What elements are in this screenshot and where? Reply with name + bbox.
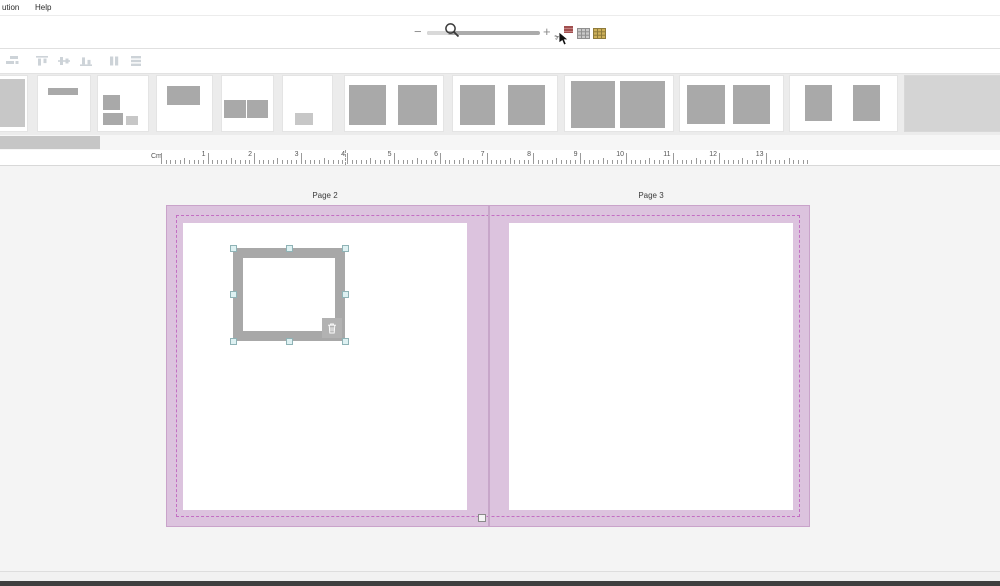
- ruler-tick: [282, 160, 283, 164]
- ruler-tick: [505, 160, 506, 164]
- layout-box: [853, 85, 880, 121]
- ruler-tick: [394, 153, 395, 164]
- page-label-left: Page 2: [285, 191, 365, 200]
- ruler-tick: [412, 160, 413, 164]
- menu-item-help[interactable]: Help: [35, 3, 51, 12]
- layout-box: [349, 85, 386, 125]
- photo-placeholder[interactable]: [233, 248, 345, 341]
- ruler-tick: [607, 160, 608, 164]
- ruler-tick: [170, 160, 171, 164]
- ruler-tick: [319, 160, 320, 164]
- layout-box: [224, 100, 246, 118]
- layout-strip: [0, 74, 1000, 135]
- layout-box: [0, 79, 25, 127]
- ruler-tick: [277, 158, 278, 164]
- ruler-tick: [542, 160, 543, 164]
- layout-thumb-caption-box[interactable]: [283, 76, 332, 131]
- ruler-tick: [691, 160, 692, 164]
- selection-handle[interactable]: [230, 245, 237, 252]
- zoom-slider[interactable]: [427, 31, 540, 35]
- ruler-tick: [454, 160, 455, 164]
- ruler-tick: [538, 160, 539, 164]
- scrollbar-thumb[interactable]: [0, 136, 100, 149]
- ruler-tick: [756, 160, 757, 164]
- ruler-tick: [398, 160, 399, 164]
- ruler-number: 10: [614, 151, 624, 158]
- ruler-tick: [580, 153, 581, 164]
- ruler-tick: [459, 160, 460, 164]
- ruler-tick: [603, 158, 604, 164]
- ruler-tick: [528, 160, 529, 164]
- ruler-tick: [417, 158, 418, 164]
- selection-handle[interactable]: [286, 245, 293, 252]
- align-middle-icon[interactable]: [57, 55, 71, 67]
- align-bottom-icon[interactable]: [79, 55, 93, 67]
- layout-box: [247, 100, 268, 118]
- ruler-tick: [259, 160, 260, 164]
- selection-handle[interactable]: [342, 291, 349, 298]
- ruler-tick: [719, 153, 720, 164]
- ruler-tick: [403, 160, 404, 164]
- layout-box: [687, 85, 725, 124]
- ruler-tick: [487, 153, 488, 164]
- ruler-tick: [226, 160, 227, 164]
- layout-box: [620, 81, 665, 128]
- layout-box: [167, 86, 200, 105]
- ruler-number: 13: [754, 151, 764, 158]
- ruler-tick: [426, 160, 427, 164]
- ruler-tick: [617, 160, 618, 164]
- ruler-tick: [421, 160, 422, 164]
- layout-box: [571, 81, 614, 128]
- ruler-tick: [468, 160, 469, 164]
- menu-item-resolution[interactable]: ution: [2, 3, 19, 12]
- ruler-tick: [500, 160, 501, 164]
- ruler-number: 5: [382, 151, 392, 158]
- ruler-tick: [356, 160, 357, 164]
- ruler-tick: [798, 160, 799, 164]
- ruler-number: 12: [707, 151, 717, 158]
- ruler-tick: [747, 160, 748, 164]
- layout-box: [48, 88, 78, 95]
- ruler-tick: [291, 160, 292, 164]
- selection-handle[interactable]: [342, 338, 349, 345]
- ruler-number: 2: [242, 151, 252, 158]
- selection-handle[interactable]: [342, 245, 349, 252]
- align-top-icon[interactable]: [35, 55, 49, 67]
- ruler-cursor-indicator: [345, 150, 347, 165]
- ruler-tick: [463, 158, 464, 164]
- ruler-tick: [742, 158, 743, 164]
- ruler-tick: [273, 160, 274, 164]
- ruler-tick: [175, 160, 176, 164]
- selection-handle[interactable]: [230, 338, 237, 345]
- ruler-tick: [733, 160, 734, 164]
- ruler-tick: [161, 153, 162, 164]
- spread-order-icon[interactable]: [5, 55, 19, 67]
- ruler-tick: [807, 160, 808, 164]
- layout-thumb-spread-two-a[interactable]: [345, 76, 443, 131]
- layout-box: [460, 85, 494, 125]
- ruler-tick: [347, 153, 348, 164]
- strip-scrollbar[interactable]: [0, 135, 1000, 150]
- ruler-tick: [673, 153, 674, 164]
- ruler-tick: [324, 158, 325, 164]
- ruler-number: 7: [475, 151, 485, 158]
- spread-resize-handle[interactable]: [478, 514, 486, 522]
- ruler-tick: [491, 160, 492, 164]
- ruler-tick: [714, 160, 715, 164]
- ruler-tick: [561, 160, 562, 164]
- selection-handle[interactable]: [230, 291, 237, 298]
- ruler-tick: [626, 153, 627, 164]
- ruler-tick: [570, 160, 571, 164]
- ruler-tick: [793, 160, 794, 164]
- ruler-tick: [435, 160, 436, 164]
- ruler-tick: [296, 160, 297, 164]
- ruler-tick: [552, 160, 553, 164]
- ruler-tick: [361, 160, 362, 164]
- ruler-tick: [245, 160, 246, 164]
- ruler-tick: [668, 160, 669, 164]
- ruler-tick: [593, 160, 594, 164]
- ruler-tick: [180, 160, 181, 164]
- ruler-tick: [514, 160, 515, 164]
- ruler-tick: [789, 158, 790, 164]
- ruler-tick: [445, 160, 446, 164]
- layout-box: [126, 116, 138, 125]
- ruler-tick: [310, 160, 311, 164]
- layout-thumb-mixed-three[interactable]: [98, 76, 148, 131]
- ruler-tick: [533, 153, 534, 164]
- ruler-tick: [431, 160, 432, 164]
- pages-overview-icon[interactable]: [593, 28, 606, 39]
- ruler-tick: [208, 153, 209, 164]
- ruler-tick: [686, 160, 687, 164]
- ruler-tick: [575, 160, 576, 164]
- ruler-tick: [366, 160, 367, 164]
- page-3[interactable]: [509, 223, 793, 510]
- ruler-tick: [333, 160, 334, 164]
- ruler-tick: [640, 160, 641, 164]
- ruler-number: 6: [428, 151, 438, 158]
- ruler-tick: [473, 160, 474, 164]
- ruler-number: 4: [335, 151, 345, 158]
- ruler-tick: [305, 160, 306, 164]
- layout-thumb-two-small[interactable]: [222, 76, 273, 131]
- ruler-tick: [184, 158, 185, 164]
- ruler-number: 11: [661, 151, 671, 158]
- ruler-tick: [519, 160, 520, 164]
- ruler: Cm 12345678910111213: [0, 150, 1000, 166]
- ruler-tick: [779, 160, 780, 164]
- ruler-tick: [407, 160, 408, 164]
- ruler-tick: [249, 160, 250, 164]
- magnifier-slider-handle[interactable]: [444, 22, 462, 40]
- ruler-tick: [598, 160, 599, 164]
- ruler-tick: [375, 160, 376, 164]
- ruler-tick: [482, 160, 483, 164]
- ruler-tick: [752, 160, 753, 164]
- application-window: ution Help − + ✂: [0, 0, 1000, 586]
- ruler-number: 8: [521, 151, 531, 158]
- ruler-tick: [352, 160, 353, 164]
- footer-strip: [0, 571, 1000, 581]
- ruler-tick: [566, 160, 567, 164]
- ruler-tick: [710, 160, 711, 164]
- ruler-tick: [775, 160, 776, 164]
- ruler-tick: [328, 160, 329, 164]
- layout-thumb-single-top[interactable]: [157, 76, 212, 131]
- ruler-tick: [384, 160, 385, 164]
- ruler-tick: [700, 160, 701, 164]
- page-label-right: Page 3: [611, 191, 691, 200]
- ruler-tick: [677, 160, 678, 164]
- layout-box: [398, 85, 437, 125]
- layout-thumb-title-bar[interactable]: [38, 76, 90, 131]
- ruler-tick: [645, 160, 646, 164]
- menu-bar: ution Help: [0, 0, 1000, 16]
- ruler-tick: [784, 160, 785, 164]
- ruler-tick: [696, 158, 697, 164]
- ruler-tick: [370, 158, 371, 164]
- ruler-tick: [477, 160, 478, 164]
- zoom-in-button[interactable]: +: [543, 25, 551, 39]
- ruler-tick: [203, 160, 204, 164]
- spine-line: [488, 206, 490, 526]
- ruler-tick: [194, 160, 195, 164]
- ruler-tick: [217, 160, 218, 164]
- ruler-tick: [705, 160, 706, 164]
- layout-box: [295, 113, 313, 125]
- ruler-tick: [287, 160, 288, 164]
- ruler-tick: [631, 160, 632, 164]
- ruler-tick: [198, 160, 199, 164]
- mouse-cursor: [558, 31, 569, 47]
- ruler-tick: [240, 160, 241, 164]
- layout-thumb-spread-two-e[interactable]: [790, 76, 897, 131]
- alignment-toolbar: [0, 49, 1000, 74]
- ruler-tick: [212, 160, 213, 164]
- ruler-tick: [766, 153, 767, 164]
- ruler-number: 3: [289, 151, 299, 158]
- ruler-tick: [682, 160, 683, 164]
- ruler-tick: [728, 160, 729, 164]
- ruler-tick: [440, 153, 441, 164]
- ruler-tick: [556, 158, 557, 164]
- ruler-tick: [724, 160, 725, 164]
- distribute-horizontal-icon[interactable]: [107, 55, 121, 67]
- ruler-tick: [584, 160, 585, 164]
- ruler-number: 1: [196, 151, 206, 158]
- ruler-tick: [254, 153, 255, 164]
- ruler-tick: [654, 160, 655, 164]
- ruler-tick: [635, 160, 636, 164]
- ruler-tick: [649, 158, 650, 164]
- ruler-tick: [338, 160, 339, 164]
- taskbar-edge: [0, 581, 1000, 586]
- ruler-tick: [221, 160, 222, 164]
- ruler-tick: [301, 153, 302, 164]
- ruler-tick: [496, 160, 497, 164]
- layout-thumb-spread-two-c[interactable]: [565, 76, 673, 131]
- grid-view-icon[interactable]: [577, 28, 590, 39]
- ruler-tick: [770, 160, 771, 164]
- ruler-tick: [589, 160, 590, 164]
- layout-box: [508, 85, 544, 125]
- ruler-tick: [803, 160, 804, 164]
- ruler-tick: [547, 160, 548, 164]
- ruler-tick: [621, 160, 622, 164]
- layout-box: [733, 85, 770, 124]
- zoom-toolbar: − + ✂: [0, 16, 1000, 49]
- ruler-tick: [738, 160, 739, 164]
- design-canvas[interactable]: Page 2 Page 3: [0, 166, 1000, 571]
- page-spread[interactable]: [166, 205, 810, 527]
- layout-box: [103, 95, 120, 110]
- ruler-tick: [612, 160, 613, 164]
- layout-strip-end-panel[interactable]: [905, 76, 1000, 131]
- ruler-tick: [189, 160, 190, 164]
- selection-handle[interactable]: [286, 338, 293, 345]
- ruler-tick: [380, 160, 381, 164]
- distribute-vertical-icon[interactable]: [129, 55, 143, 67]
- zoom-out-button[interactable]: −: [414, 25, 422, 39]
- ruler-tick: [231, 158, 232, 164]
- layout-box: [805, 85, 832, 121]
- ruler-tick: [268, 160, 269, 164]
- ruler-tick: [449, 160, 450, 164]
- ruler-tick: [663, 160, 664, 164]
- layout-thumb-full-bleed[interactable]: [0, 76, 27, 131]
- layout-thumb-spread-two-d[interactable]: [680, 76, 783, 131]
- ruler-tick: [263, 160, 264, 164]
- ruler-tick: [342, 160, 343, 164]
- ruler-tick: [235, 160, 236, 164]
- layout-box: [103, 113, 123, 125]
- ruler-number: 9: [568, 151, 578, 158]
- delete-placeholder-button[interactable]: [322, 318, 342, 338]
- ruler-tick: [524, 160, 525, 164]
- trash-icon: [326, 322, 338, 335]
- ruler-tick: [389, 160, 390, 164]
- layout-thumb-spread-two-b[interactable]: [453, 76, 557, 131]
- ruler-tick: [659, 160, 660, 164]
- ruler-tick: [166, 160, 167, 164]
- ruler-tick: [314, 160, 315, 164]
- ruler-tick: [761, 160, 762, 164]
- ruler-tick: [510, 158, 511, 164]
